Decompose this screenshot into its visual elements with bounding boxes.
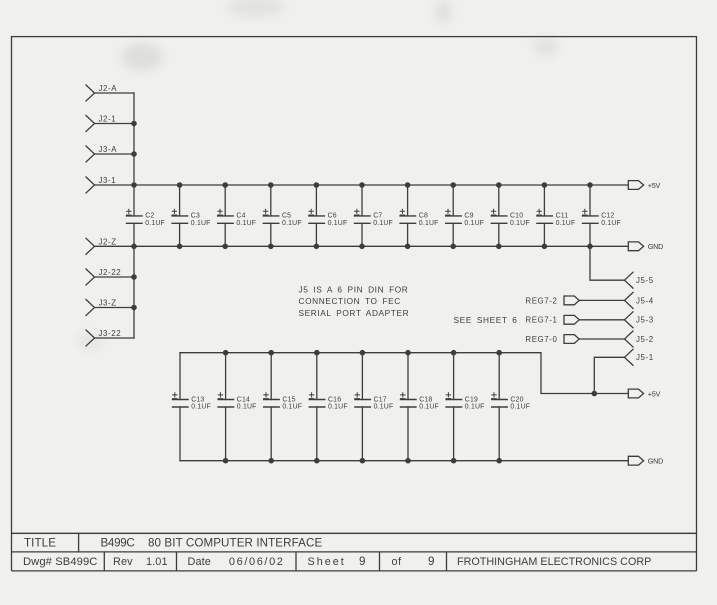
svg-text:REG7-0: REG7-0 (525, 335, 557, 344)
svg-text:CONNECTION TO FEC: CONNECTION TO FEC (299, 296, 401, 306)
svg-text:C13: C13 (191, 396, 204, 403)
svg-text:C4: C4 (236, 213, 245, 220)
svg-text:J5-1: J5-1 (636, 353, 654, 362)
svg-text:Rev: Rev (113, 556, 133, 568)
svg-text:C2: C2 (145, 213, 154, 220)
svg-text:0.1UF: 0.1UF (374, 404, 394, 411)
svg-text:GND: GND (648, 242, 663, 251)
svg-text:C17: C17 (374, 396, 387, 403)
svg-text:J3-Z: J3-Z (99, 299, 117, 308)
svg-text:J3-A: J3-A (99, 145, 118, 154)
svg-text:0.1UF: 0.1UF (328, 220, 348, 227)
svg-text:J5-3: J5-3 (636, 316, 654, 325)
svg-text:0.1UF: 0.1UF (373, 220, 393, 227)
svg-text:C8: C8 (419, 213, 428, 220)
svg-text:+5V: +5V (648, 389, 661, 398)
svg-text:C11: C11 (556, 213, 569, 220)
svg-text:C9: C9 (464, 213, 473, 220)
svg-text:9: 9 (428, 555, 435, 568)
svg-text:0.1UF: 0.1UF (419, 404, 439, 411)
svg-text:C18: C18 (419, 396, 432, 403)
svg-text:0.1UF: 0.1UF (282, 220, 302, 227)
svg-text:SERIAL PORT ADAPTER: SERIAL PORT ADAPTER (299, 308, 410, 318)
svg-text:C7: C7 (373, 213, 382, 220)
svg-text:J2-Z: J2-Z (99, 237, 117, 246)
svg-text:Dwg# SB499C: Dwg# SB499C (23, 556, 97, 568)
svg-text:C6: C6 (328, 213, 337, 220)
svg-text:GND: GND (648, 457, 663, 466)
svg-text:0.1UF: 0.1UF (601, 220, 621, 227)
svg-text:B499C: B499C (101, 537, 135, 550)
svg-text:C19: C19 (465, 396, 478, 403)
svg-text:C14: C14 (237, 396, 250, 403)
svg-text:C20: C20 (510, 396, 523, 403)
svg-text:Date: Date (188, 556, 211, 568)
svg-text:9: 9 (359, 555, 366, 568)
svg-text:of: of (392, 556, 403, 568)
svg-text:FROTHINGHAM ELECTRONICS CORP: FROTHINGHAM ELECTRONICS CORP (457, 556, 651, 568)
svg-text:0.1UF: 0.1UF (419, 220, 439, 227)
svg-text:TITLE: TITLE (24, 537, 56, 550)
svg-text:J5-5: J5-5 (636, 276, 654, 285)
svg-text:0.1UF: 0.1UF (237, 404, 257, 411)
svg-text:0.1UF: 0.1UF (510, 404, 530, 411)
svg-text:C3: C3 (191, 213, 200, 220)
svg-text:0.1UF: 0.1UF (236, 220, 256, 227)
svg-text:C16: C16 (328, 396, 341, 403)
svg-text:C15: C15 (282, 396, 295, 403)
svg-text:0.1UF: 0.1UF (465, 404, 485, 411)
svg-text:+5V: +5V (648, 181, 661, 190)
svg-text:C12: C12 (601, 213, 614, 220)
svg-text:0.1UF: 0.1UF (328, 404, 348, 411)
svg-text:0.1UF: 0.1UF (556, 220, 576, 227)
svg-text:J3-22: J3-22 (99, 329, 122, 338)
svg-text:Sheet: Sheet (308, 556, 346, 568)
svg-text:REG7-1: REG7-1 (525, 316, 557, 325)
svg-text:J2-A: J2-A (99, 84, 118, 93)
svg-text:0.1UF: 0.1UF (510, 220, 530, 227)
svg-text:SEE SHEET 6: SEE SHEET 6 (454, 315, 518, 325)
svg-text:J2-1: J2-1 (99, 115, 117, 124)
svg-text:80 BIT COMPUTER INTERFACE: 80 BIT COMPUTER INTERFACE (148, 537, 322, 550)
svg-text:REG7-2: REG7-2 (525, 296, 557, 305)
svg-text:C5: C5 (282, 213, 291, 220)
svg-text:J5 IS A 6 PIN DIN FOR: J5 IS A 6 PIN DIN FOR (299, 285, 409, 295)
svg-text:0.1UF: 0.1UF (191, 404, 211, 411)
svg-text:C10: C10 (510, 213, 523, 220)
svg-text:0.1UF: 0.1UF (282, 404, 302, 411)
svg-text:J5-4: J5-4 (636, 296, 654, 305)
svg-text:J3-1: J3-1 (99, 176, 117, 185)
svg-text:0.1UF: 0.1UF (191, 220, 211, 227)
svg-text:1.01: 1.01 (146, 556, 168, 568)
svg-text:J2-22: J2-22 (99, 268, 122, 277)
svg-text:0.1UF: 0.1UF (464, 220, 484, 227)
svg-text:J5-2: J5-2 (636, 335, 654, 344)
svg-text:06/06/02: 06/06/02 (229, 556, 285, 568)
svg-text:0.1UF: 0.1UF (145, 220, 165, 227)
